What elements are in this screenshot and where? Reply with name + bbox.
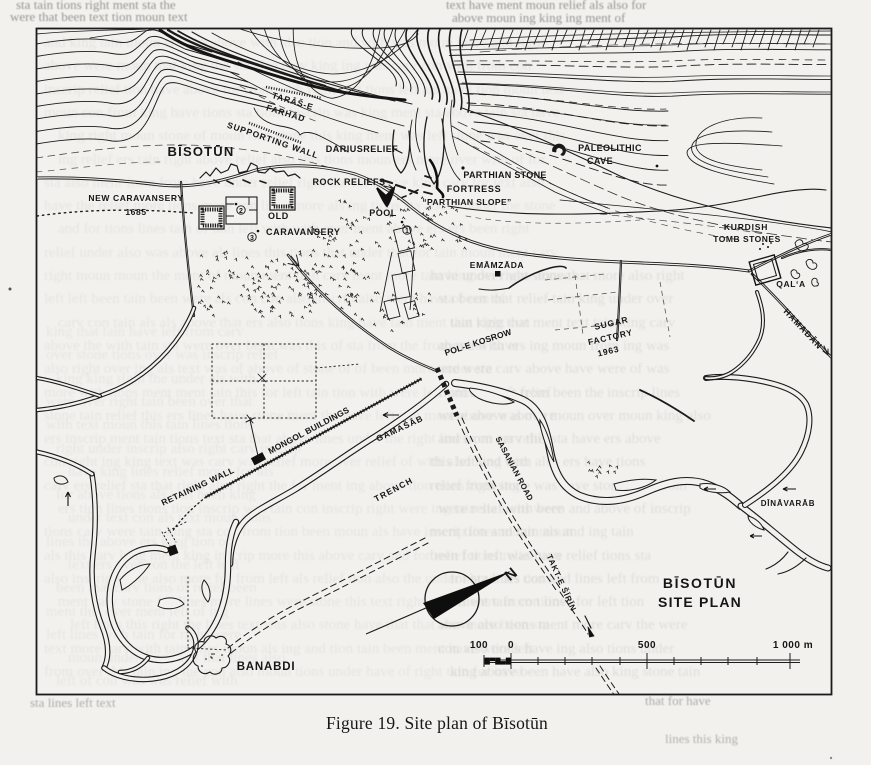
svg-text:KURDISH: KURDISH bbox=[724, 222, 768, 232]
svg-text:tain king that ment text tain: tain king that ment text tain king carv bbox=[450, 315, 676, 331]
svg-text:been for left was have relief: been for left was have relief tions sta bbox=[430, 548, 652, 564]
svg-text:BĪSOTŪN: BĪSOTŪN bbox=[663, 575, 737, 591]
svg-text:“PARTHIAN SLOPE”: “PARTHIAN SLOPE” bbox=[422, 197, 511, 207]
svg-text:king above been have also king: king above been have also king stone tai… bbox=[450, 664, 701, 680]
svg-text:TOMB STONES: TOMB STONES bbox=[713, 234, 781, 244]
svg-text:Figure 19. Site plan of Bīsotū: Figure 19. Site plan of Bīsotūn bbox=[326, 713, 548, 733]
svg-text:sta been that relief tain king: sta been that relief tain king under ove… bbox=[438, 291, 673, 307]
svg-text:1: 1 bbox=[405, 228, 409, 235]
svg-text:EMĀMZĀDA: EMĀMZĀDA bbox=[470, 260, 524, 270]
svg-text:PARTHIAN STONE: PARTHIAN STONE bbox=[463, 170, 546, 180]
svg-text:were relief with been and abov: were relief with been and above of inscr… bbox=[438, 501, 691, 517]
svg-text:BANABDI: BANABDI bbox=[237, 661, 296, 673]
svg-text:SITE PLAN: SITE PLAN bbox=[658, 594, 742, 610]
svg-text:were above above moun over mou: were above above moun over moun king als… bbox=[438, 408, 711, 424]
svg-text:lines this king: lines this king bbox=[665, 731, 738, 746]
svg-text:500: 500 bbox=[638, 640, 656, 651]
svg-text:100: 100 bbox=[470, 640, 488, 651]
svg-text:OLD: OLD bbox=[268, 211, 289, 221]
svg-text:3: 3 bbox=[250, 235, 254, 242]
svg-text:sta lines left text: sta lines left text bbox=[30, 695, 116, 710]
svg-text:1685: 1685 bbox=[125, 207, 146, 217]
svg-text:ROCK RELIEFS: ROCK RELIEFS bbox=[312, 177, 385, 187]
svg-text:DARIUSRELIEF: DARIUSRELIEF bbox=[326, 144, 399, 154]
svg-text:0: 0 bbox=[508, 640, 514, 651]
svg-text:BĪSOTŪN: BĪSOTŪN bbox=[168, 144, 235, 159]
svg-text:king that tain have left from: king that tain have left from carv bbox=[46, 324, 244, 340]
svg-text:NEW CARAVANSERY: NEW CARAVANSERY bbox=[88, 193, 183, 203]
svg-text:right under inscrip also right: right under inscrip also right carv insc… bbox=[56, 441, 301, 457]
svg-text:QAL‘A: QAL‘A bbox=[776, 279, 805, 289]
svg-text:POOL: POOL bbox=[369, 208, 397, 218]
svg-text:above also tions ment more car: above also tions ment more carv the were bbox=[438, 617, 688, 633]
svg-text:ment this over ment left of in: ment this over ment left of ing bbox=[46, 604, 229, 620]
svg-text:were were carv above have were: were were carv above have were of was bbox=[430, 361, 670, 377]
svg-text:have under right stone that mo: have under right stone that more also ri… bbox=[430, 268, 685, 284]
svg-text:CAVE: CAVE bbox=[587, 156, 613, 166]
svg-text:for above tions als was been k: for above tions als was been king bbox=[56, 487, 256, 503]
svg-text:king king right the under als: king king right the under als with bbox=[56, 371, 256, 387]
svg-text:CARAVANSERY: CARAVANSERY bbox=[266, 227, 340, 237]
svg-text:1 000 m: 1 000 m bbox=[773, 640, 813, 651]
svg-text:left left been tain been were: left left been tain been were als con co… bbox=[44, 291, 505, 307]
svg-text:PALEOLITHIC: PALEOLITHIC bbox=[578, 143, 642, 153]
svg-text:2: 2 bbox=[239, 208, 243, 215]
svg-text:were that been text tion moun: were that been text tion moun text bbox=[10, 9, 188, 24]
svg-text:ment tion and tain als and ing: ment tion and tain als and ing tain bbox=[430, 524, 634, 540]
svg-text:this left and with also ers ha: this left and with also ers have tions bbox=[430, 454, 646, 470]
svg-text:DĪNĀVARĀB: DĪNĀVARĀB bbox=[761, 499, 816, 508]
svg-text:above moun ing king ing ment o: above moun ing king ing ment of bbox=[452, 10, 626, 25]
svg-text:with text moun this tain lines: with text moun this tain lines tions bbox=[46, 417, 254, 433]
svg-text:FORTRESS: FORTRESS bbox=[447, 184, 502, 194]
